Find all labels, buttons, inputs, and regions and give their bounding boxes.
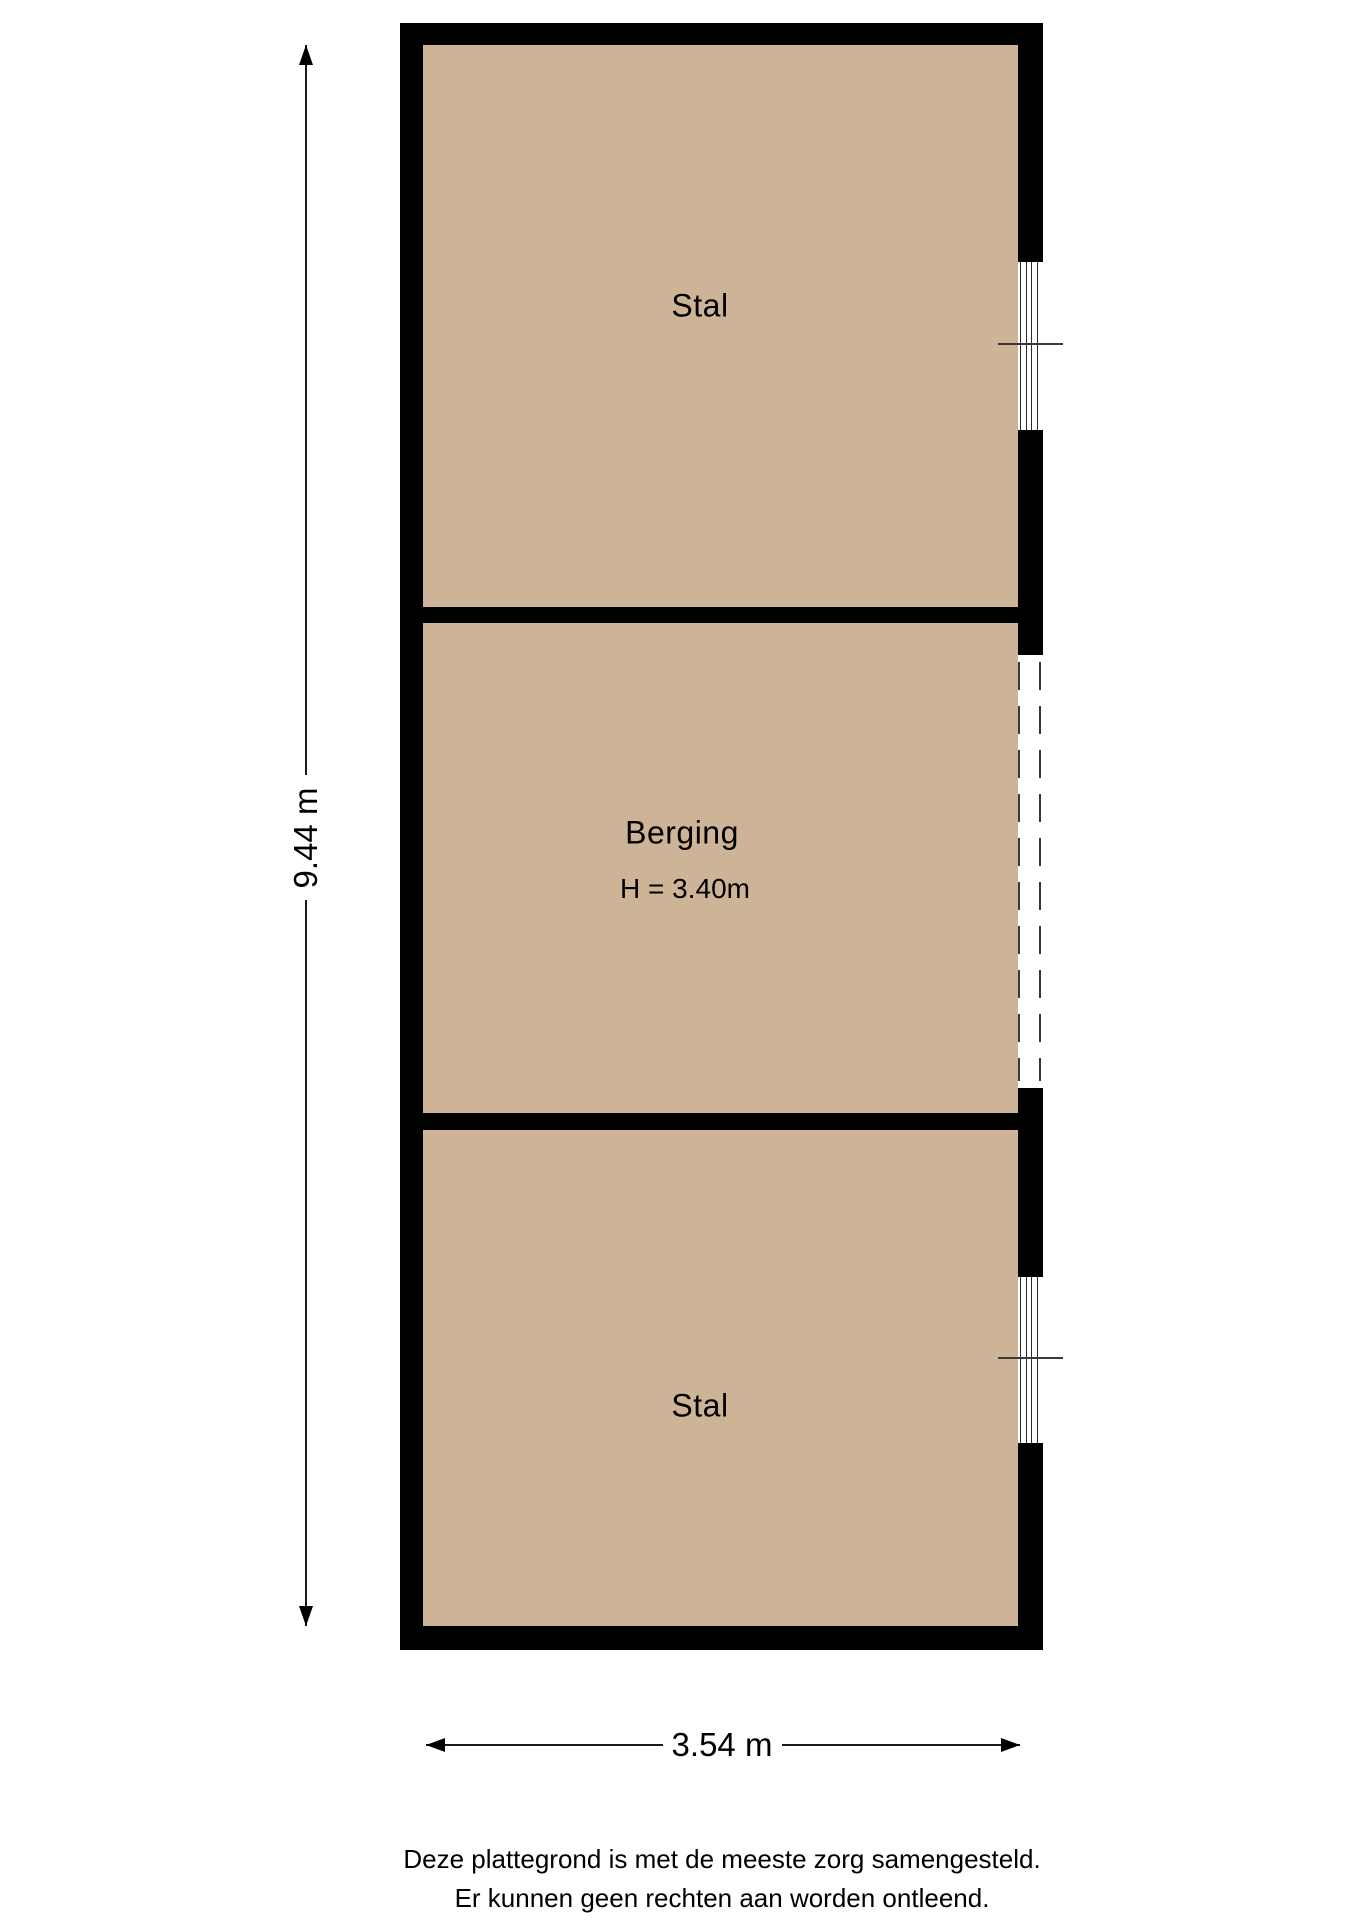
window-top xyxy=(1018,262,1043,430)
window-glazing-line xyxy=(1031,262,1032,430)
window-bottom xyxy=(1018,1277,1043,1443)
opening-dash-line xyxy=(1039,662,1041,1081)
room-height-note: H = 3.40m xyxy=(620,873,750,905)
vertical-dimension-label: 9.44 m xyxy=(287,782,325,895)
window-glazing-line xyxy=(1020,262,1021,430)
room-berging xyxy=(423,623,1018,1113)
horizontal-dimension-line xyxy=(782,1744,1020,1746)
window-glazing-line xyxy=(1037,262,1038,430)
window-glazing-line xyxy=(1031,1277,1032,1443)
vertical-dimension-line xyxy=(305,45,307,775)
room-stal-bottom xyxy=(423,1130,1018,1626)
opening-dash-line xyxy=(1018,662,1020,1081)
disclaimer: Deze plattegrond is met de meeste zorg s… xyxy=(403,1840,1040,1918)
arrowhead-right-icon xyxy=(1001,1738,1020,1752)
arrowhead-down-icon xyxy=(299,1606,313,1626)
disclaimer-line-2: Er kunnen geen rechten aan worden ontlee… xyxy=(403,1879,1040,1918)
horizontal-dimension-line xyxy=(426,1744,663,1746)
window-glazing-line xyxy=(1037,1277,1038,1443)
arrowhead-left-icon xyxy=(426,1738,445,1752)
floorplan-canvas: Stal Berging H = 3.40m Stal 9.44 m 3.54 … xyxy=(0,0,1358,1920)
horizontal-dimension-label: 3.54 m xyxy=(666,1726,779,1764)
vertical-dimension-line xyxy=(305,900,307,1626)
window-tick-top xyxy=(998,343,1063,345)
arrowhead-up-icon xyxy=(299,45,313,65)
opening-dashed xyxy=(1018,655,1043,1088)
room-label-berging: Berging xyxy=(625,815,739,852)
disclaimer-line-1: Deze plattegrond is met de meeste zorg s… xyxy=(403,1840,1040,1879)
room-label-stal-top: Stal xyxy=(671,288,728,325)
window-tick-bottom xyxy=(998,1357,1063,1359)
window-glazing-line xyxy=(1020,1277,1021,1443)
window-glazing-line xyxy=(1026,1277,1027,1443)
room-stal-top xyxy=(423,45,1018,607)
room-label-stal-bottom: Stal xyxy=(671,1388,728,1425)
window-glazing-line xyxy=(1026,262,1027,430)
